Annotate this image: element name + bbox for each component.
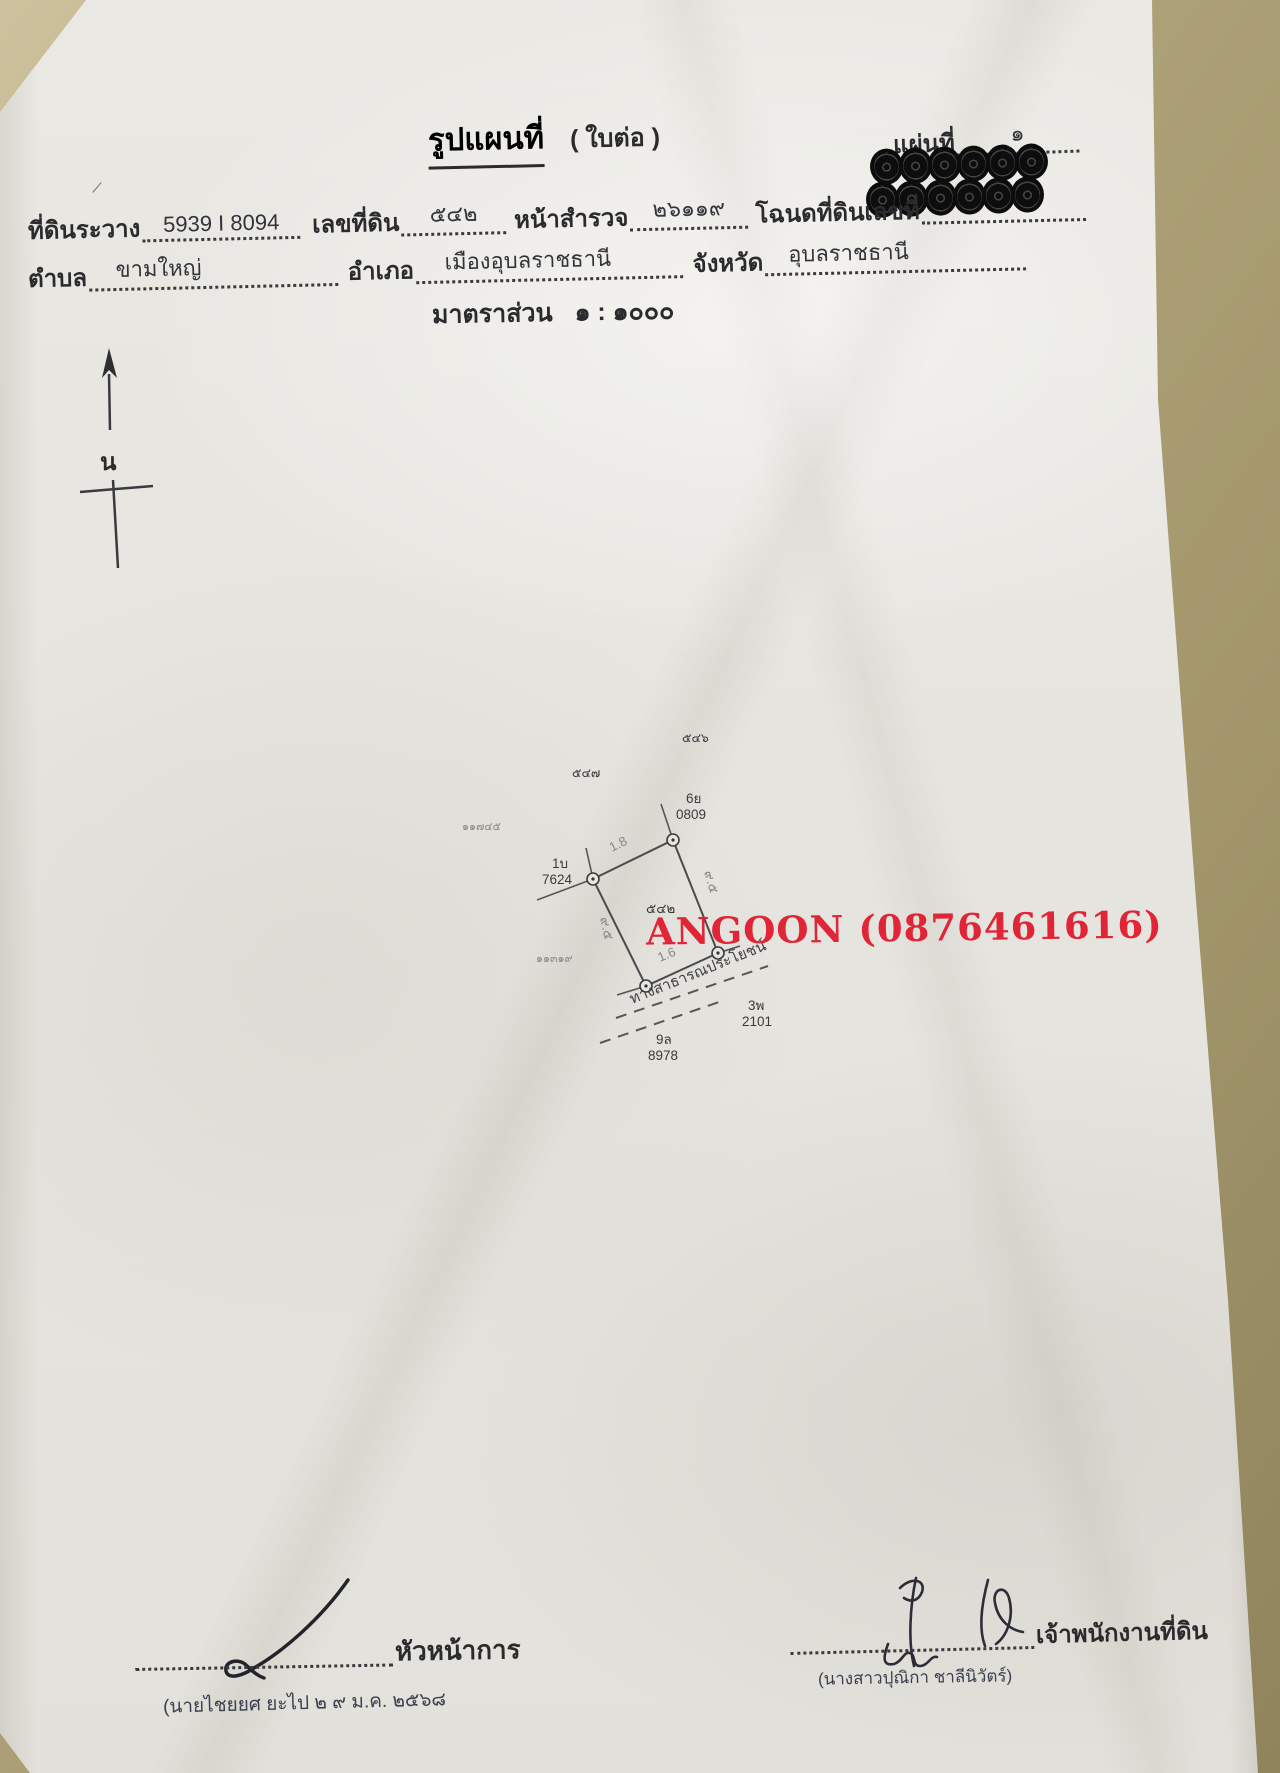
subdistrict-label: ตำบล <box>28 265 88 293</box>
neighbor-parcel-right: ๕๔๖ <box>682 731 709 745</box>
scale-row: มาตราส่วน ๑ : ๑๐๐๐ <box>432 298 675 330</box>
redaction-scribble <box>1014 143 1048 180</box>
north-compass: น <box>58 340 188 575</box>
deed-no-label: โฉนดที่ดินเลขที่ <box>755 198 920 228</box>
survey-sheet-label: ที่ดินระวาง <box>28 216 141 245</box>
left-signature-row: หัวหน้าการ <box>133 1631 521 1671</box>
pencil-number-left: ๑๑๗๔๕ <box>462 821 501 833</box>
watermark-text: ANGOON (0876461616) <box>646 902 1163 953</box>
district-line: เมืองอุบลราชธานี <box>416 245 683 284</box>
marker-w-number: 7624 <box>542 872 573 887</box>
scale-label: มาตราส่วน <box>432 300 553 330</box>
marker-s-number: 8978 <box>648 1048 678 1063</box>
dimension-right: ๙.๕ <box>701 869 722 895</box>
left-signature-title: หัวหน้าการ <box>395 1636 521 1667</box>
marker-se-number: 2101 <box>742 1014 772 1029</box>
left-signature-line <box>135 1633 394 1670</box>
north-letter: น <box>100 449 117 476</box>
survey-page-value: ๒๖๑๑๙ <box>652 190 725 227</box>
province-value: อุบลราชธานี <box>788 234 909 272</box>
right-signature-line <box>790 1616 1035 1655</box>
marker-ne-code: 6ย <box>686 791 701 806</box>
marker-w-code: 1บ <box>552 856 568 871</box>
dimension-top: 1.8 <box>607 833 630 855</box>
cross-vertical-line <box>113 480 118 568</box>
neighbor-parcel-left: ๕๔๗ <box>572 766 600 780</box>
left-signature-stroke <box>150 1578 380 1688</box>
deed-no-line <box>921 188 1086 225</box>
marker-ne-number: 0809 <box>676 807 706 822</box>
page-title: รูปแผนที่ <box>427 112 544 170</box>
parcel-no-line: ๕๔๒ <box>401 201 506 236</box>
marker-s-code: 9ล <box>656 1032 672 1047</box>
subdistrict-line: ขามใหญ่ <box>89 253 338 292</box>
survey-sheet-value: 5939 I 8094 <box>163 209 280 238</box>
survey-sheet-line: 5939 I 8094 <box>142 206 301 243</box>
parcel-no-value: ๕๔๒ <box>429 196 478 232</box>
scale-value: ๑ : ๑๐๐๐ <box>574 298 674 327</box>
cross-horizontal-line <box>80 486 153 492</box>
north-arrow-shaft <box>109 374 110 430</box>
marker-se-code: 3พ <box>748 998 764 1013</box>
pencil-number-bottom: ๑๑๓๑๙ <box>536 953 573 965</box>
north-arrow-head <box>102 348 117 378</box>
district-label: อำเภอ <box>347 258 414 286</box>
parcel-map: ๕๔๖ ๕๔๗ ๑๑๗๔๕ ๑๑๓๑๙ ๕๔๒ 6ย 0809 1บ 7624 … <box>420 600 800 1080</box>
province-label: จังหวัด <box>692 250 763 278</box>
document-header: รูปแผนที่ ( ใบต่อ ) <box>427 109 660 169</box>
parcel-no-label: เลขที่ดิน <box>312 210 400 238</box>
survey-page-line: ๒๖๑๑๙ <box>630 196 748 232</box>
district-value: เมืองอุบลราชธานี <box>444 241 611 280</box>
right-signature-stamp: (นางสาวปุณิกา ชาลีนิวัตร์) <box>818 1662 1013 1692</box>
survey-page-label: หน้าสำรวจ <box>514 205 629 234</box>
page-title-suffix: ( ใบต่อ ) <box>570 117 661 159</box>
province-line: อุบลราชธานี <box>765 237 1026 276</box>
right-signature-title: เจ้าพนักงานที่ดิน <box>1036 1618 1209 1649</box>
subdistrict-value: ขามใหญ่ <box>115 250 202 287</box>
